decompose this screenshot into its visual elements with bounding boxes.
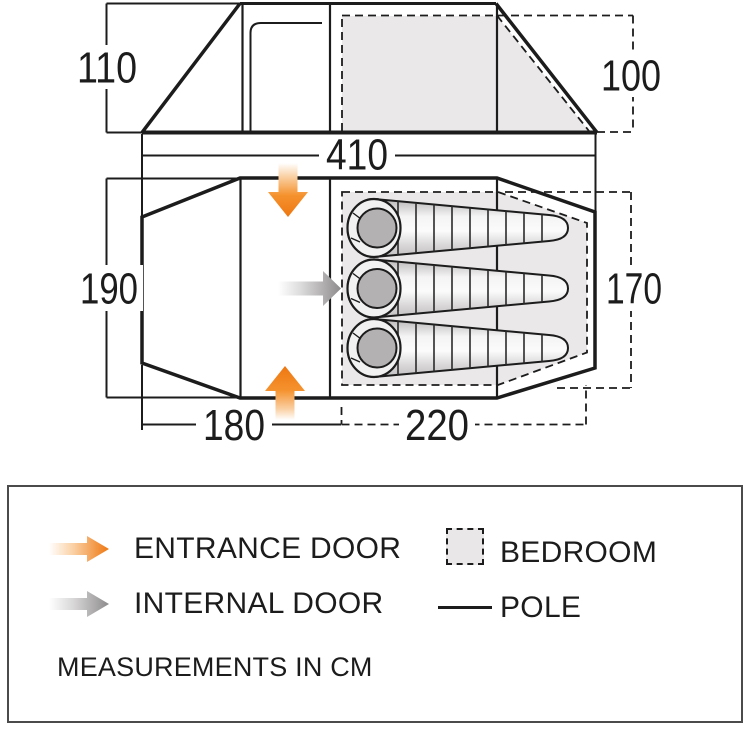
entrance-door-arrow-icon <box>49 535 111 563</box>
internal-door-arrow-icon <box>49 590 111 618</box>
measurements-note: MEASUREMENTS IN CM <box>57 653 373 681</box>
tent-side-view <box>107 4 634 218</box>
dim-porch-length: 180 <box>203 401 265 450</box>
pole-label: POLE <box>500 592 581 624</box>
dim-side-height-inner: 100 <box>601 52 661 101</box>
dim-bedroom-length: 220 <box>405 401 469 450</box>
tent-views-canvas: 110 100 410 190 170 180 220 <box>0 0 750 460</box>
tent-dimensions-diagram: 110 100 410 190 170 180 220 ENTRANCE DOO… <box>0 0 750 738</box>
entrance-door-arrow-top-icon <box>268 163 308 217</box>
internal-door-arrow-icon <box>278 271 341 306</box>
internal-door-label: INTERNAL DOOR <box>134 588 383 620</box>
side-entrance-door-outline <box>251 23 323 132</box>
dim-total-length: 410 <box>326 131 388 180</box>
tent-floor-plan <box>107 163 632 430</box>
bedroom-swatch-icon <box>446 528 484 565</box>
dim-side-height-outer: 110 <box>77 44 137 93</box>
entrance-door-label: ENTRANCE DOOR <box>134 533 401 565</box>
legend-box: ENTRANCE DOOR BEDROOM INTERNAL DOOR POLE… <box>7 485 743 723</box>
bedroom-label: BEDROOM <box>500 537 657 569</box>
dim-plan-width-inner: 170 <box>606 265 662 314</box>
dim-plan-width-outer: 190 <box>80 265 138 314</box>
pole-line-icon <box>438 606 492 609</box>
